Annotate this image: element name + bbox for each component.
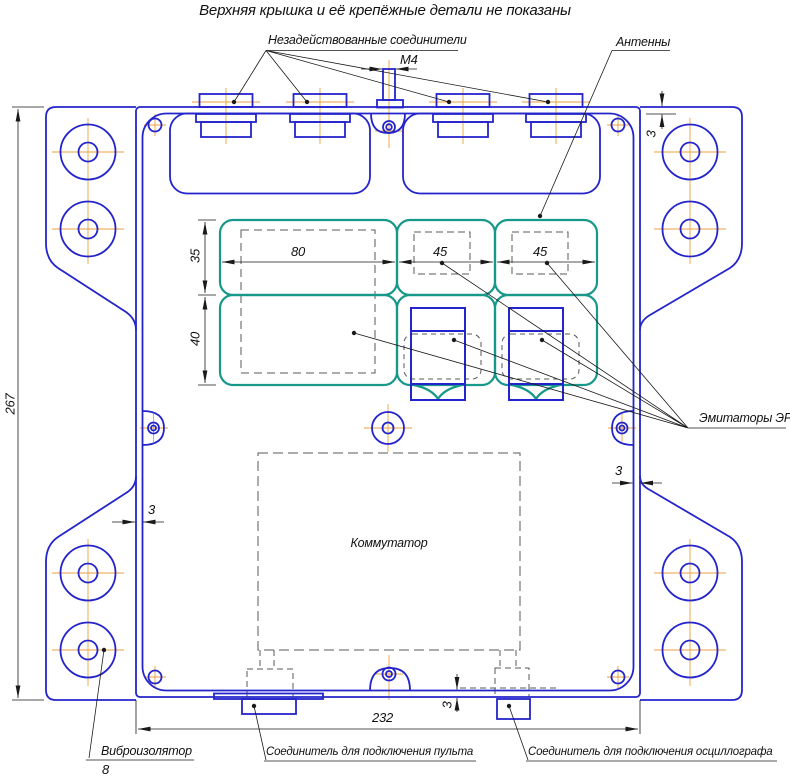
dim-module-45-mid: 45 bbox=[433, 245, 447, 258]
centerlines bbox=[52, 60, 726, 700]
dimension-lines bbox=[12, 51, 786, 762]
callout-console-connector: Соединитель для подключения пульта bbox=[266, 747, 473, 759]
inner-wall bbox=[143, 114, 634, 691]
oscilloscope-connector bbox=[497, 699, 530, 719]
vibro-isolators bbox=[61, 125, 718, 678]
label-commutator: Коммутатор bbox=[329, 537, 449, 550]
top-recess-left bbox=[170, 114, 370, 194]
dim-wall-right-3: 3 bbox=[615, 464, 622, 477]
drawing-title: Верхняя крышка и её крепёжные детали не … bbox=[140, 3, 630, 18]
commutator-outline bbox=[258, 453, 520, 650]
dim-module-45-right: 45 bbox=[533, 245, 547, 258]
dim-row-35: 35 bbox=[189, 249, 202, 263]
leader-dots bbox=[102, 100, 550, 708]
technical-drawing-page: Верхняя крышка и её крепёжные детали не … bbox=[0, 0, 790, 779]
dim-module-80: 80 bbox=[291, 245, 305, 258]
top-recess-right bbox=[403, 114, 600, 194]
dim-wall-top-3: 3 bbox=[645, 130, 658, 137]
dim-wall-left-3: 3 bbox=[148, 503, 155, 516]
hidden-lines bbox=[241, 230, 579, 697]
body-outline bbox=[136, 107, 640, 697]
dim-wall-bottom-3: 3 bbox=[441, 701, 454, 708]
wing-top-left bbox=[46, 107, 136, 330]
callout-oscilloscope-connector: Соединитель для подключения осциллографа bbox=[528, 747, 772, 759]
wing-bottom-left bbox=[46, 476, 136, 700]
dim-row-40: 40 bbox=[189, 332, 202, 346]
callout-antennas: Антенны bbox=[616, 36, 670, 49]
callout-unused-connectors: Незадействованные соединители bbox=[268, 34, 467, 47]
drawing-canvas bbox=[0, 0, 790, 779]
dim-width-232: 232 bbox=[372, 711, 393, 724]
dim-thread-m4: М4 bbox=[400, 53, 418, 66]
dim-height-267: 267 bbox=[4, 393, 17, 414]
callout-emitters: Эмитаторы ЭРИ bbox=[699, 412, 790, 425]
module-tab bbox=[512, 385, 560, 399]
console-connector bbox=[242, 699, 296, 714]
wing-top-right bbox=[640, 107, 742, 330]
callout-vibro-isolator: Виброизолятор bbox=[101, 745, 192, 758]
wing-bottom-right bbox=[640, 476, 742, 700]
module-tab bbox=[414, 385, 462, 399]
callout-vibro-position: 8 bbox=[102, 763, 109, 776]
